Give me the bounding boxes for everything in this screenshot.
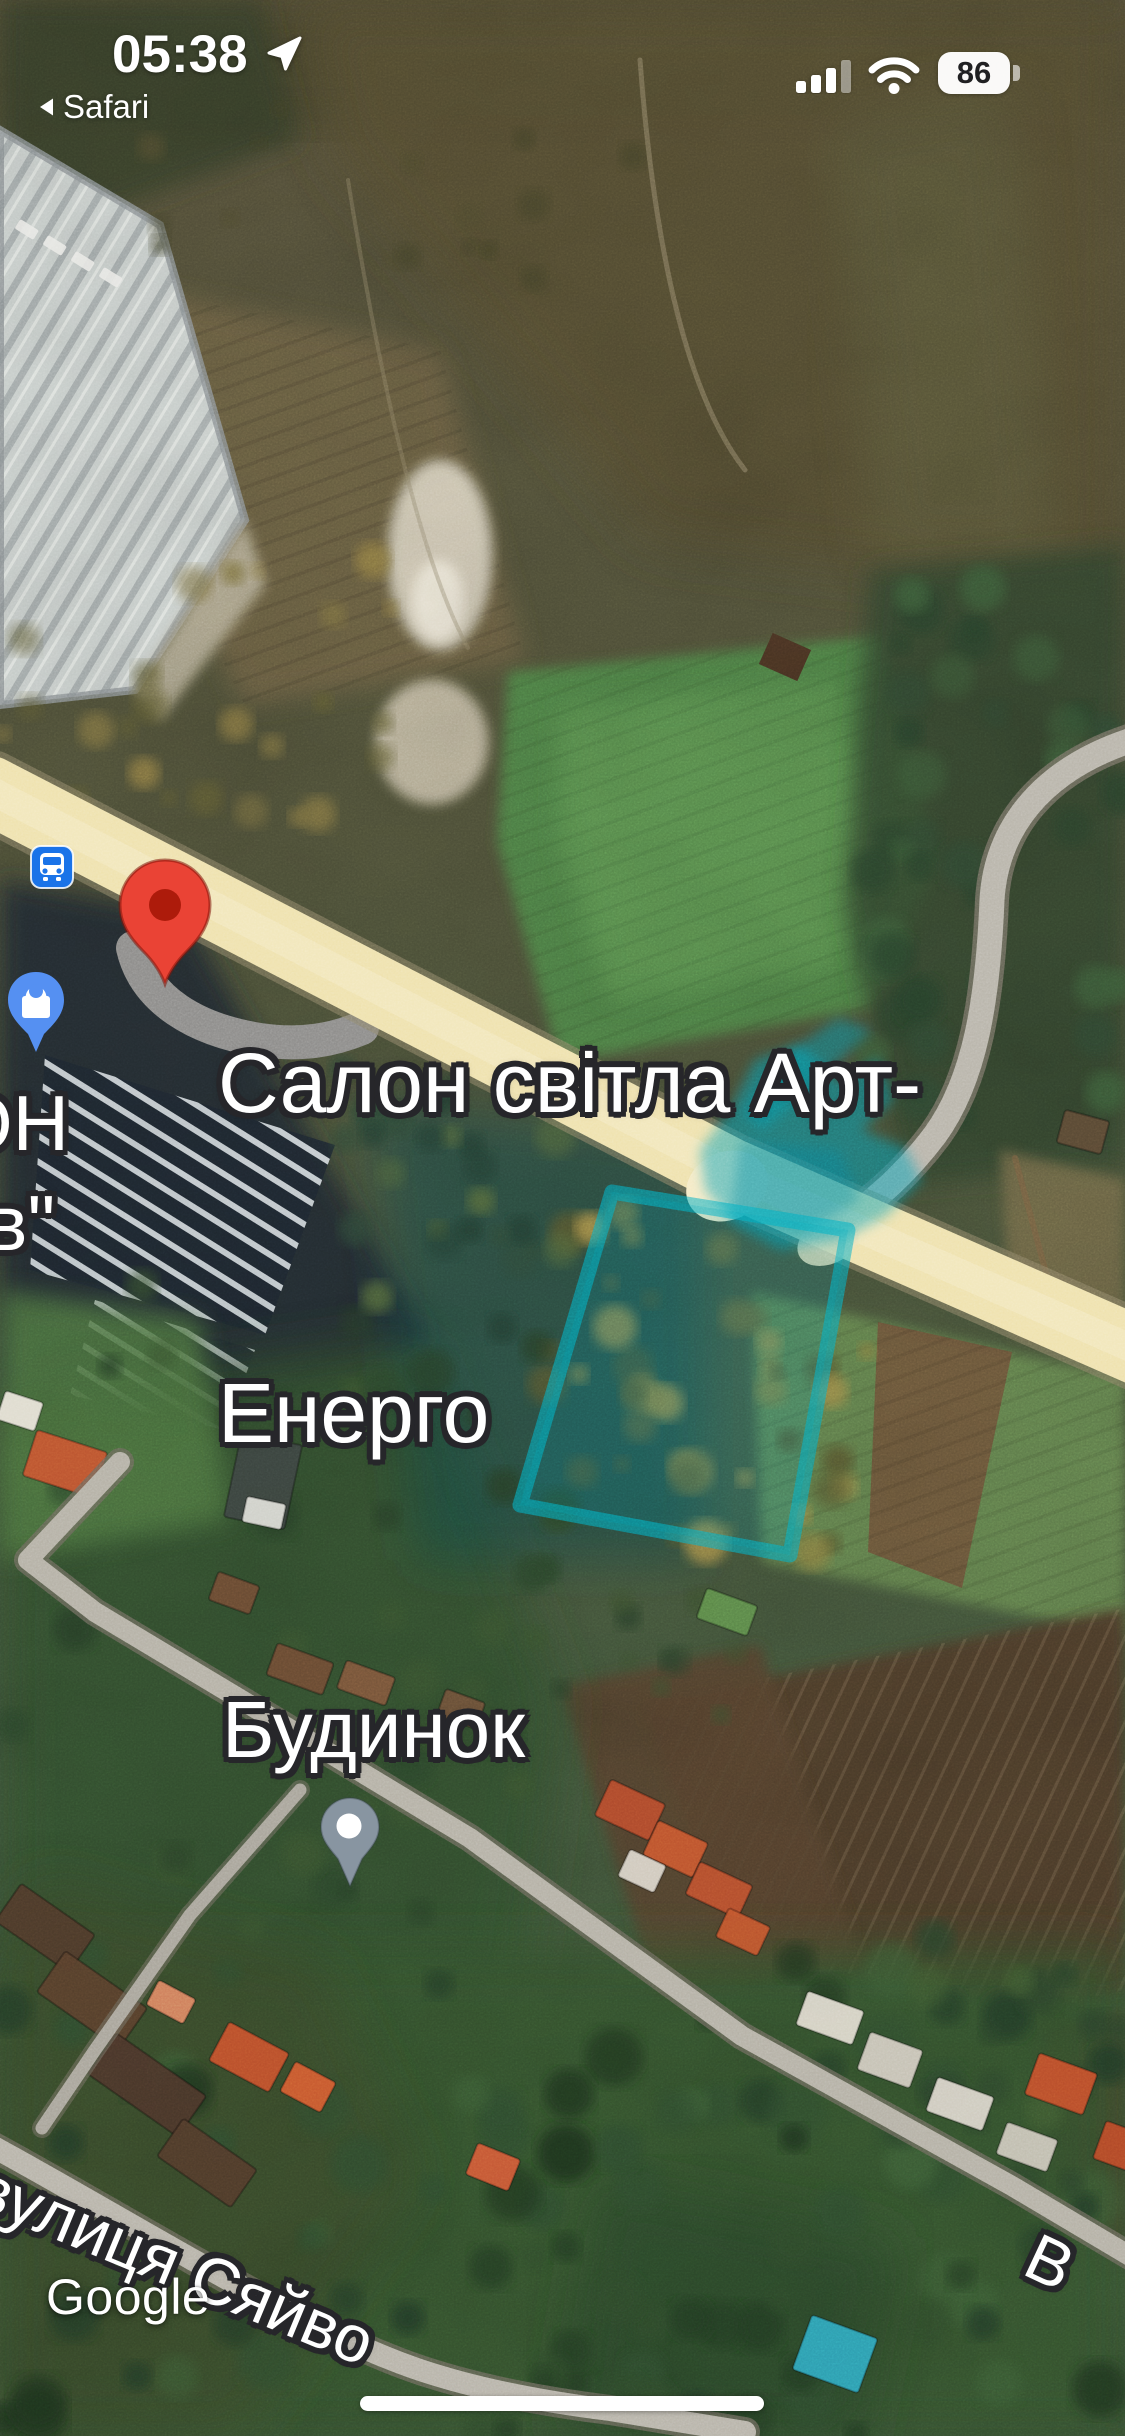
back-triangle-icon [40,98,54,116]
battery-icon: 86 [938,52,1010,94]
red-pin-icon[interactable] [113,856,217,988]
house-label[interactable]: Будинок [222,1684,525,1776]
battery-percent: 86 [957,55,991,91]
back-app-label: Safari [63,88,149,126]
house-dot-marker-icon[interactable] [319,1796,381,1888]
google-watermark: Google [46,2268,210,2326]
poi-label-line2[interactable]: Енерго [218,1358,921,1468]
cutoff-label-line1: ОН [0,1078,69,1169]
iphone-screen: Салон світла Арт- Енерго ОН в" Будинок в… [0,0,1125,2436]
clock: 05:38 [112,24,248,85]
shopping-bag-pin-icon[interactable] [6,970,66,1054]
battery-nub [1013,65,1020,81]
poi-label[interactable]: Салон світла Арт- Енерго [218,808,921,1688]
bus-stop-icon[interactable] [30,845,74,889]
location-arrow-icon [264,34,304,74]
home-indicator[interactable] [360,2396,764,2411]
poi-label-line1[interactable]: Салон світла Арт- [218,1028,921,1138]
cutoff-label-line2: в" [0,1178,55,1269]
back-to-app[interactable]: Safari [40,88,149,126]
cellular-signal-icon [796,56,858,94]
wifi-icon [868,55,920,95]
